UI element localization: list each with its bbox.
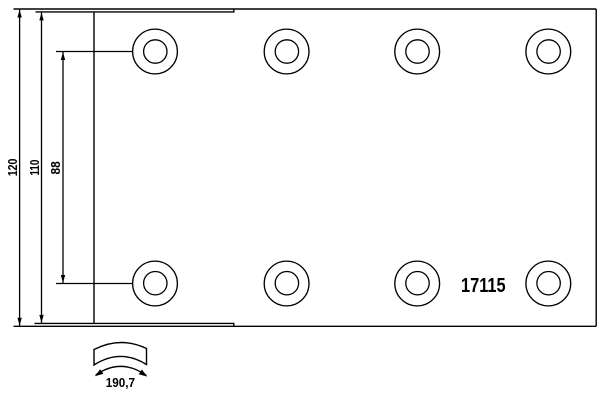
- svg-text:110: 110: [29, 160, 43, 176]
- svg-text:120: 120: [5, 158, 20, 176]
- svg-text:17115: 17115: [461, 273, 506, 296]
- svg-text:190,7: 190,7: [106, 376, 135, 391]
- svg-text:88: 88: [49, 161, 64, 174]
